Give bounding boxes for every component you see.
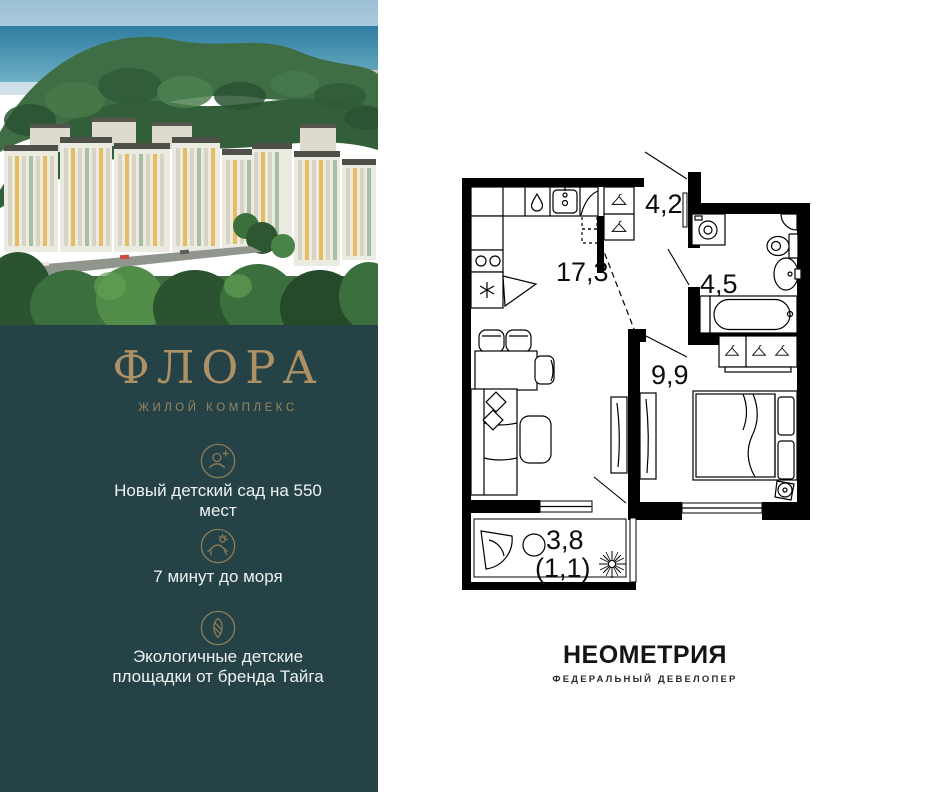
apartment-buildings: [4, 118, 376, 266]
person-add-icon: [200, 443, 236, 479]
label-balcony-reduced: (1,1): [535, 553, 591, 583]
bathroom-sink: [774, 258, 801, 290]
balcony-door: [594, 477, 626, 503]
feature-kindergarten-label: Новый детский сад на 550 мест: [58, 481, 378, 521]
label-bathroom: 4,5: [700, 269, 738, 299]
eco-leaf-icon: [200, 610, 236, 646]
balcony-side-rail: [630, 518, 636, 582]
dining-table: [475, 330, 554, 390]
kitchen-counter: [471, 187, 598, 216]
tall-cabinet: [471, 216, 503, 250]
developer-logo: НЕОМЕТРИЯ ФЕДЕРАЛЬНЫЙ ДЕВЕЛОПЕР: [455, 641, 835, 685]
developer-name: НЕОМЕТРИЯ: [455, 641, 835, 670]
feature-eco: [58, 610, 378, 646]
fridge: [471, 272, 536, 308]
coffee-table: [520, 416, 551, 463]
balcony-armchair: [481, 531, 512, 569]
label-balcony: 3,8: [546, 525, 584, 555]
brand-panel-content: ФЛОРА ЖИЛОЙ КОМПЛЕКС Новый детский сад н…: [58, 325, 378, 792]
label-hallway: 4,2: [645, 189, 683, 219]
complex-aerial-photo: [0, 0, 378, 325]
kitchen-fixtures: [471, 184, 634, 308]
label-kitchen-living: 17,3: [556, 257, 609, 287]
sofa: [471, 389, 517, 495]
toilet: [767, 234, 798, 258]
air-conditioner: [775, 481, 794, 500]
bathroom-door: [668, 249, 689, 285]
bedroom-wardrobe: [719, 336, 797, 372]
stove: [471, 250, 503, 272]
hall-mirror: [683, 193, 687, 227]
feature-eco-label: Экологичные детские площадки от бренда Т…: [58, 647, 378, 687]
tv-stand: [640, 393, 656, 479]
feature-sea-label: 7 минут до моря: [58, 567, 378, 587]
flyer: ФЛОРА ЖИЛОЙ КОМПЛЕКС Новый детский сад н…: [0, 0, 950, 792]
brand-panel: ФЛОРА ЖИЛОЙ КОМПЛЕКС Новый детский сад н…: [0, 325, 378, 792]
entry-door: [645, 152, 687, 179]
bed: [693, 391, 797, 480]
label-bedroom: 9,9: [651, 360, 689, 390]
floorplan: 17,3 4,2 4,5 9,9 3,8 (1,1): [452, 143, 818, 598]
bedroom-door: [646, 336, 687, 357]
feature-sea: [58, 528, 378, 564]
corner-shelf: [781, 214, 797, 230]
living-fixtures: [471, 330, 627, 495]
developer-tagline: ФЕДЕРАЛЬНЫЙ ДЕВЕЛОПЕР: [455, 674, 835, 685]
washing-machine: [692, 214, 725, 245]
feature-kindergarten: [58, 443, 378, 479]
complex-logo-subtitle: ЖИЛОЙ КОМПЛЕКС: [58, 402, 378, 414]
plant: [599, 551, 626, 578]
hall-wardrobe: [604, 187, 634, 240]
complex-logo: ФЛОРА: [58, 341, 378, 394]
tv-stand: [611, 397, 627, 473]
bathtub: [700, 296, 797, 333]
beach-lounger-icon: [200, 528, 236, 564]
